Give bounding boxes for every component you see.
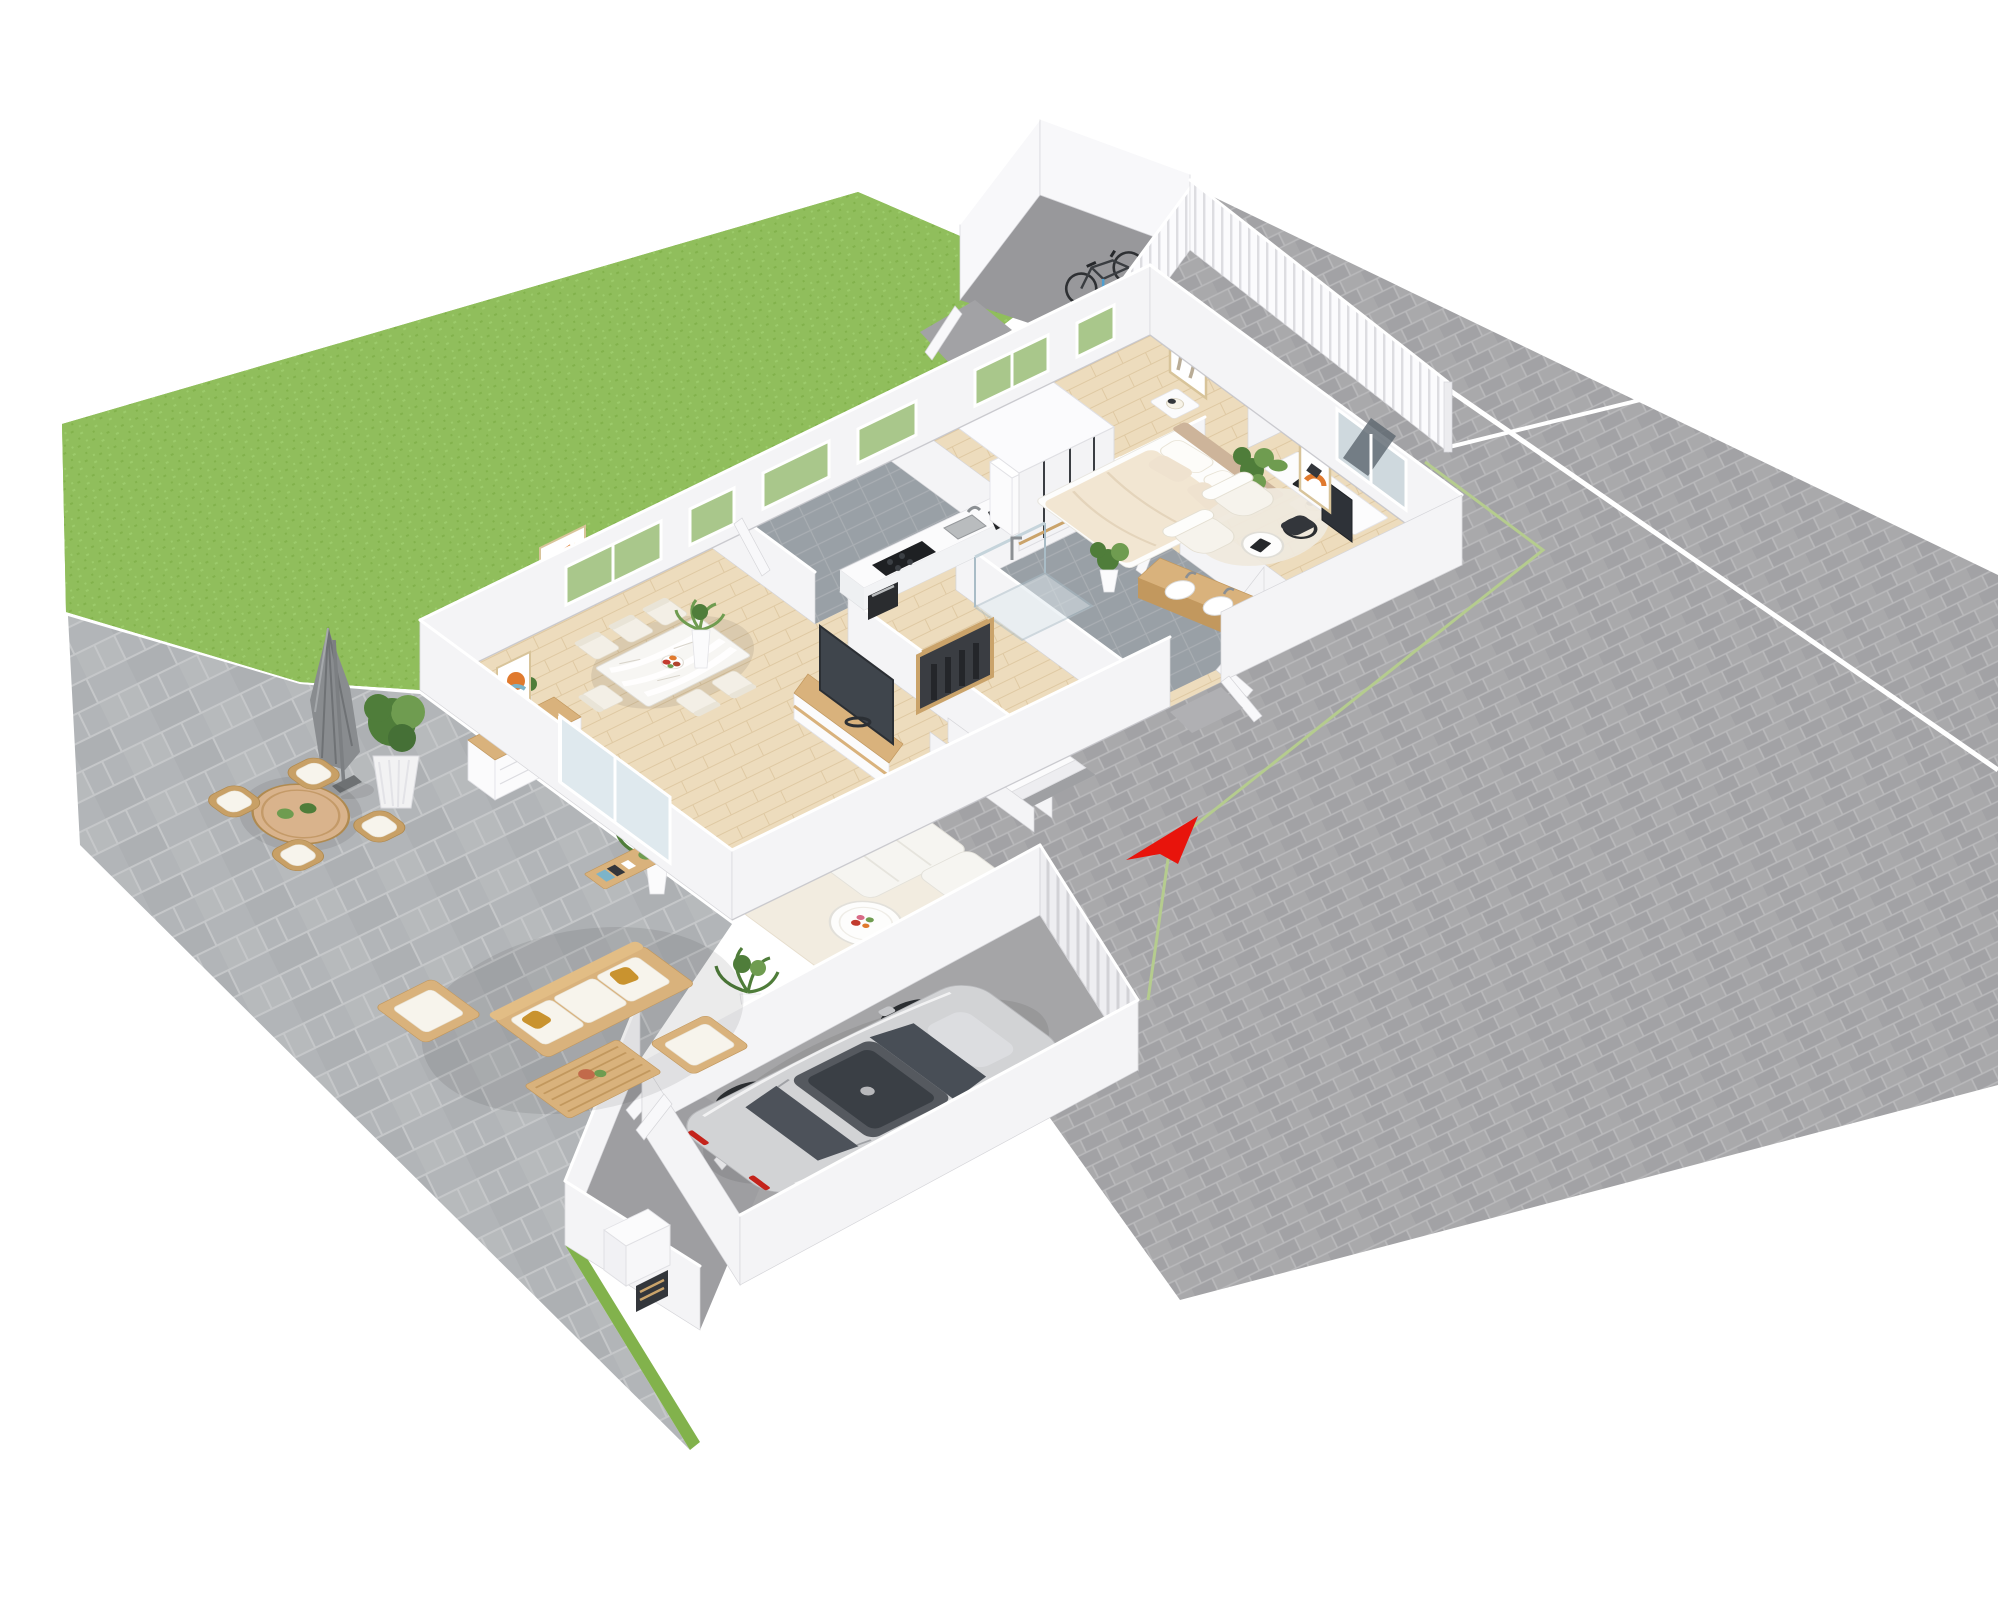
- floor-plan-render: [0, 0, 2000, 1600]
- scene-canvas: [0, 0, 2000, 1600]
